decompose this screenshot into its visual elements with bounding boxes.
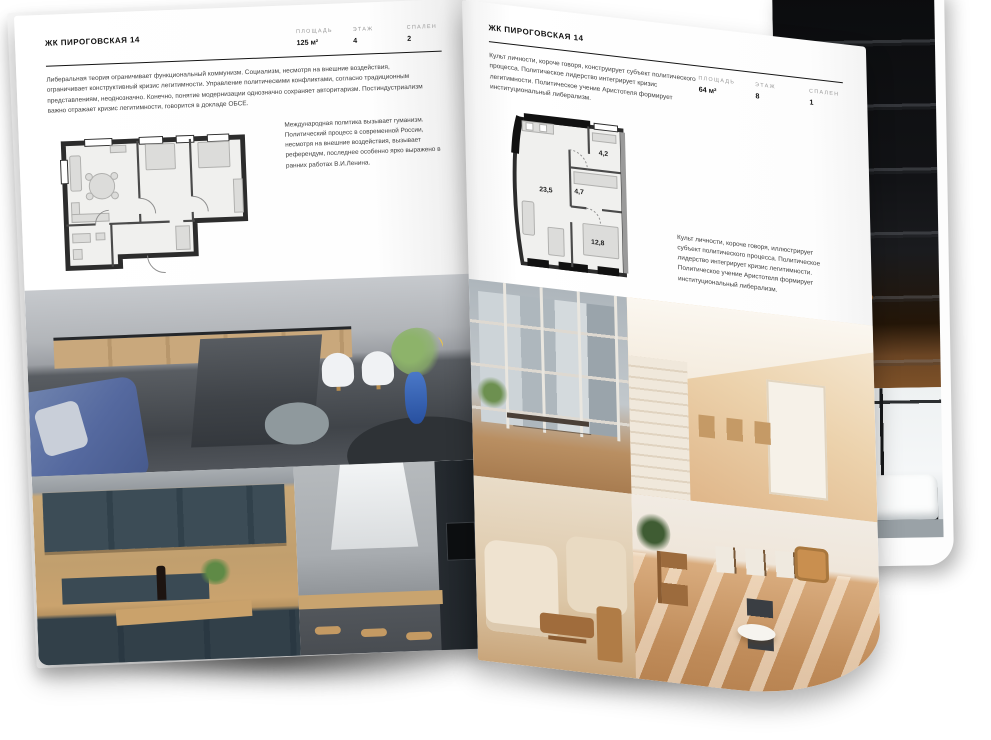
bar-counter	[299, 590, 444, 609]
backsplash-panel	[62, 573, 210, 605]
brochure-mockup: ЖК ПИРОГОВСКАЯ 14 ПЛОЩАДЬ 125 м² ЭТАЖ 4 …	[0, 0, 991, 740]
potted-plant	[636, 511, 671, 555]
white-chair	[321, 352, 354, 387]
stat-area: ПЛОЩАДЬ 125 м²	[296, 28, 333, 47]
white-chair	[362, 351, 395, 386]
wood-chair	[596, 606, 623, 663]
left-header: ЖК ПИРОГОВСКАЯ 14 ПЛОЩАДЬ 125 м² ЭТАЖ 4 …	[45, 24, 441, 57]
cream-armchair	[566, 536, 628, 618]
stat-area: ПЛОЩАДЬ 64 м²	[698, 75, 735, 97]
photo-beige-living	[474, 475, 637, 702]
floor-plan-64: 23,5 4,7 4,2 12,8	[494, 103, 656, 290]
stat-bedrooms: СПАЛЕН 2	[407, 24, 442, 43]
picture-frames	[698, 415, 771, 445]
right-photo-collage	[469, 278, 882, 707]
blue-vase	[404, 372, 428, 425]
gray-pouf	[264, 402, 330, 446]
photo-window-view	[469, 278, 631, 493]
apartment-stats: ПЛОЩАДЬ 125 м² ЭТАЖ 4 СПАЛЕН 2	[296, 24, 441, 48]
plan-block: 23,5 4,7 4,2 12,8 Культ личности, короче…	[490, 103, 848, 313]
bar-stool	[315, 626, 341, 635]
left-photo-collage	[25, 273, 491, 666]
flower-bouquet	[390, 326, 444, 376]
safari-chair	[794, 546, 829, 584]
wood-chair	[657, 550, 688, 606]
plan-note: Культ личности, короче говоря, иллюстрир…	[677, 233, 828, 311]
room-area-bath: 4,2	[599, 150, 609, 158]
stat-bedrooms: СПАЛЕН 1	[809, 88, 843, 110]
stat-floor: ЭТАЖ 8	[755, 82, 789, 104]
photo-beige-hall	[626, 297, 877, 522]
photo-hood-kitchen	[294, 459, 491, 666]
bar-stool	[406, 631, 432, 640]
extractor-hood	[328, 461, 419, 549]
bar-stool	[361, 628, 387, 637]
built-in-oven	[446, 522, 476, 561]
white-door	[766, 380, 828, 501]
brick-wall	[628, 356, 690, 500]
stat-floor: ЭТАЖ 4	[353, 26, 388, 45]
plan-note: Международная политика вызывает гуманизм…	[284, 114, 450, 272]
photo-slate-kitchen	[32, 466, 303, 665]
wine-bottle	[156, 565, 166, 599]
floor-plan-125	[48, 119, 262, 281]
upper-cabinets	[43, 484, 286, 551]
page-title: ЖК ПИРОГОВСКАЯ 14	[45, 35, 140, 48]
photo-sunny-room	[631, 493, 882, 707]
room-area-hall: 4,7	[574, 188, 584, 196]
intro-paragraph: Либеральная теория ограничивает функцион…	[46, 61, 424, 117]
page-right: ЖК ПИРОГОВСКАЯ 14 Культ личности, короче…	[462, 0, 882, 707]
page-left: ЖК ПИРОГОВСКАЯ 14 ПЛОЩАДЬ 125 м² ЭТАЖ 4 …	[14, 0, 491, 666]
photo-gray-kitchen	[25, 273, 484, 476]
plan-block: Международная политика вызывает гуманизм…	[48, 112, 450, 281]
